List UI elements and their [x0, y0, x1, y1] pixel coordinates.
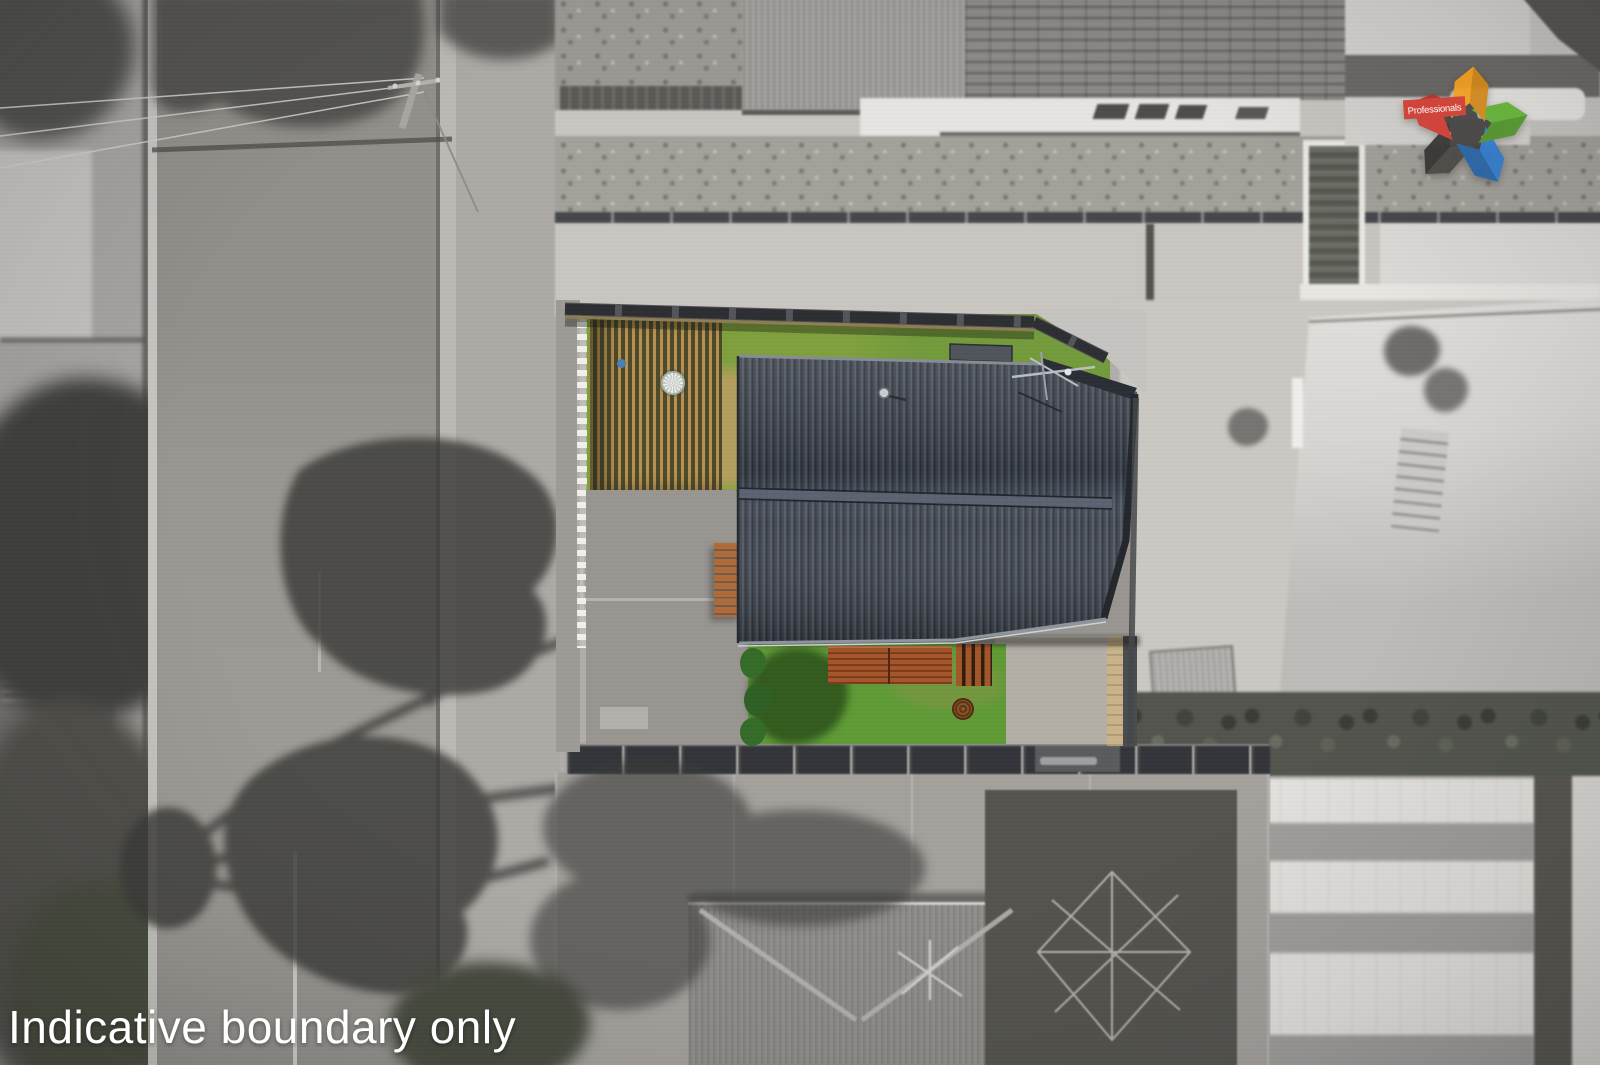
- professionals-star: Professionals: [1362, 42, 1562, 222]
- logo-label-band: Professionals: [1403, 96, 1466, 119]
- aerial-property-photo: Professionals Indicative boundary only: [0, 0, 1600, 1065]
- boundary-disclaimer-watermark: Indicative boundary only: [8, 1000, 516, 1054]
- grain-overlay: [0, 0, 1600, 1065]
- agency-logo: Professionals: [1362, 42, 1562, 222]
